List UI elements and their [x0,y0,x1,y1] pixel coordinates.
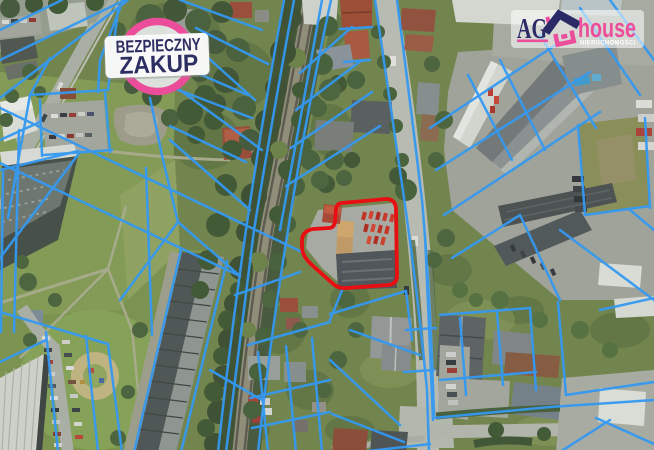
svg-text:NIERUCHOMOŚCI: NIERUCHOMOŚCI [580,40,636,47]
svg-text:ZAKUP: ZAKUP [119,50,199,80]
svg-text:house: house [578,13,636,43]
